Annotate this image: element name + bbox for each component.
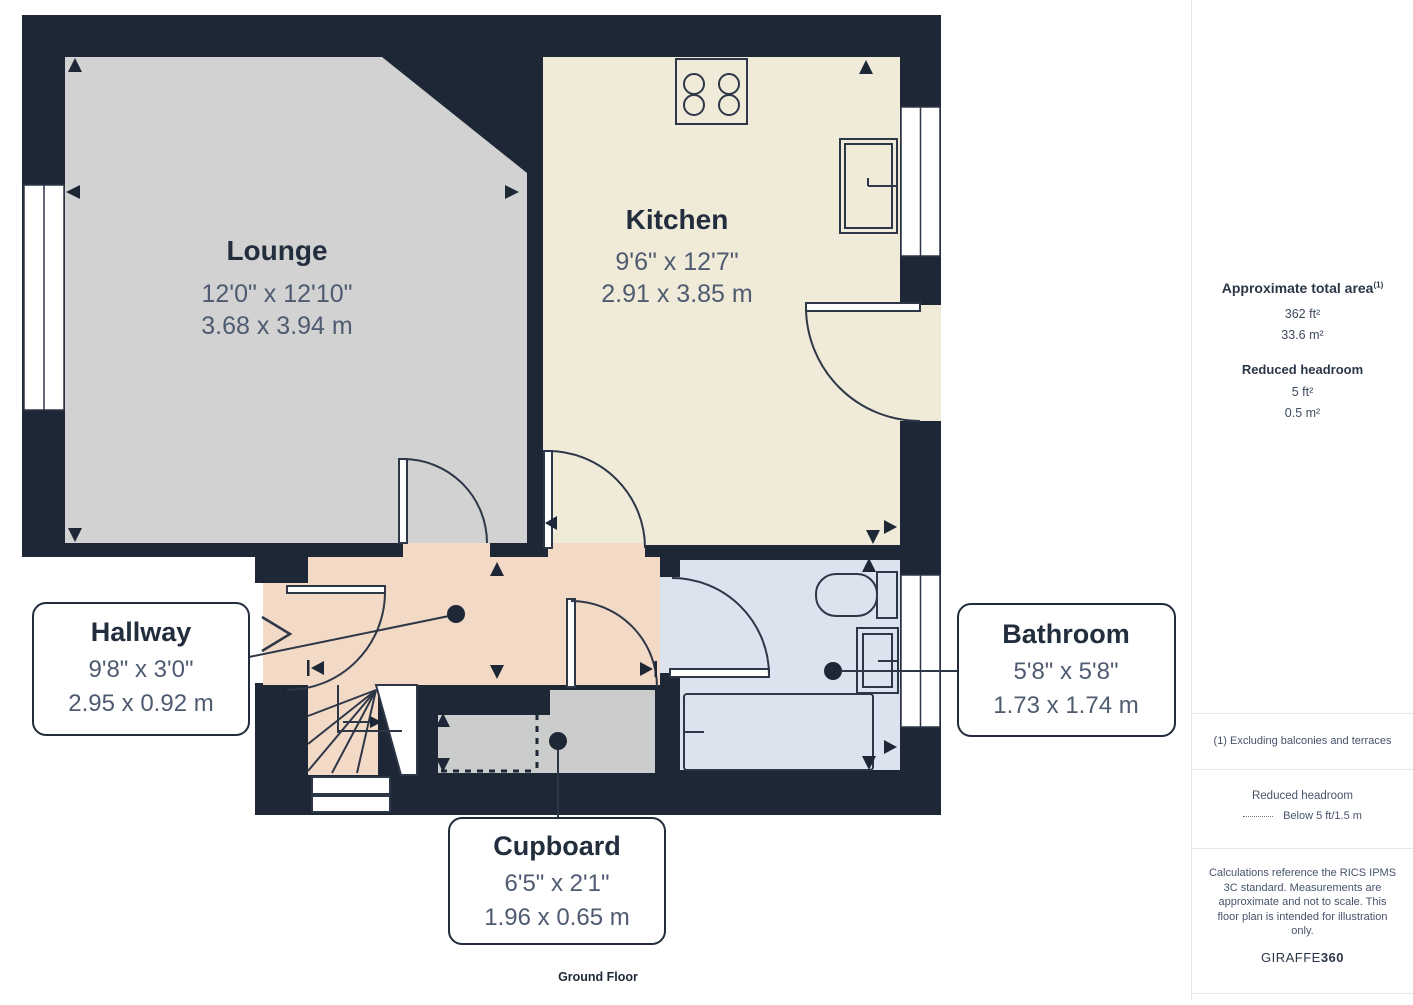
legend-entry: Below 5 ft/1.5 m bbox=[1283, 810, 1362, 822]
reduced-headroom-imperial: 5 ft² bbox=[1192, 382, 1413, 403]
lounge-dim-imperial: 12'0" x 12'10" bbox=[201, 280, 352, 308]
bathtub-icon bbox=[684, 694, 873, 770]
hallway-dim-imperial: 9'8" x 3'0" bbox=[89, 656, 194, 683]
divider bbox=[1192, 993, 1413, 994]
divider bbox=[1192, 848, 1413, 849]
lounge-name: Lounge bbox=[226, 235, 327, 266]
legend-block: Reduced headroom Below 5 ft/1.5 m bbox=[1192, 790, 1413, 822]
front-door-leaf bbox=[287, 586, 385, 593]
cupboard-dim-metric: 1.96 x 0.65 m bbox=[484, 904, 629, 931]
total-area-imperial: 362 ft² bbox=[1192, 304, 1413, 325]
floorplan-canvas: Lounge 12'0" x 12'10" 3.68 x 3.94 m Kitc… bbox=[0, 0, 1191, 1000]
cupboard-name: Cupboard bbox=[493, 831, 621, 861]
hallway-anchor-dot bbox=[447, 605, 465, 623]
lounge-dim-metric: 3.68 x 3.94 m bbox=[201, 312, 352, 340]
kitchen-door-opening bbox=[548, 543, 645, 559]
reduced-headroom-dash-icon bbox=[1243, 816, 1273, 817]
kitchen-back-door-opening bbox=[900, 305, 941, 421]
bathroom-door-opening bbox=[660, 577, 682, 673]
toilet-tank-icon bbox=[877, 572, 897, 618]
total-area-block: Approximate total area(1) 362 ft² 33.6 m… bbox=[1192, 280, 1413, 424]
cupboard-anchor-dot bbox=[549, 732, 567, 750]
legend-title: Reduced headroom bbox=[1192, 790, 1413, 802]
bathroom-name: Bathroom bbox=[1002, 619, 1130, 649]
info-sidebar: Approximate total area(1) 362 ft² 33.6 m… bbox=[1191, 0, 1413, 1000]
bathroom-door-leaf bbox=[670, 669, 769, 677]
stair-step-1 bbox=[312, 777, 390, 794]
bathroom-anchor-dot bbox=[824, 662, 842, 680]
lobby-door-leaf bbox=[567, 599, 575, 687]
reduced-headroom-metric: 0.5 m² bbox=[1192, 403, 1413, 424]
brand-name: GIRAFFE bbox=[1261, 950, 1321, 965]
total-area-title: Approximate total area(1) bbox=[1192, 280, 1413, 296]
kitchen-dim-metric: 2.91 x 3.85 m bbox=[601, 280, 752, 308]
disclaimer-text: Calculations reference the RICS IPMS 3C … bbox=[1192, 866, 1413, 939]
reduced-headroom-title: Reduced headroom bbox=[1192, 362, 1413, 377]
footnote: (1) Excluding balconies and terraces bbox=[1192, 735, 1413, 747]
kitchen-dim-imperial: 9'6" x 12'7" bbox=[615, 248, 738, 276]
stair-step-2 bbox=[312, 796, 390, 812]
bathroom-dim-imperial: 5'8" x 5'8" bbox=[1014, 658, 1119, 685]
lounge-door-opening bbox=[403, 543, 490, 559]
footnote-marker: (1) bbox=[1373, 280, 1383, 289]
brand-logo: GIRAFFE360 bbox=[1192, 950, 1413, 965]
lounge-door-leaf bbox=[399, 459, 407, 543]
total-area-metric: 33.6 m² bbox=[1192, 325, 1413, 346]
kitchen-door-leaf bbox=[544, 451, 552, 548]
floorplan-svg: Lounge 12'0" x 12'10" 3.68 x 3.94 m Kitc… bbox=[0, 0, 1191, 1000]
legend-row: Below 5 ft/1.5 m bbox=[1192, 810, 1413, 822]
brand-suffix: 360 bbox=[1321, 950, 1344, 965]
kitchen-back-door-leaf bbox=[806, 303, 920, 311]
divider bbox=[1192, 769, 1413, 770]
floor-label: Ground Floor bbox=[558, 970, 638, 984]
toilet-bowl-icon bbox=[816, 574, 877, 616]
bathroom-dim-metric: 1.73 x 1.74 m bbox=[993, 692, 1138, 719]
cupboard-dim-imperial: 6'5" x 2'1" bbox=[505, 870, 610, 897]
divider bbox=[1192, 713, 1413, 714]
front-door-opening bbox=[250, 583, 263, 683]
hallway-name: Hallway bbox=[91, 617, 192, 647]
kitchen-name: Kitchen bbox=[626, 204, 729, 235]
hallway-dim-metric: 2.95 x 0.92 m bbox=[68, 690, 213, 717]
floorplan-page: { "plan": { "floor_label": "Ground Floor… bbox=[0, 0, 1413, 1000]
